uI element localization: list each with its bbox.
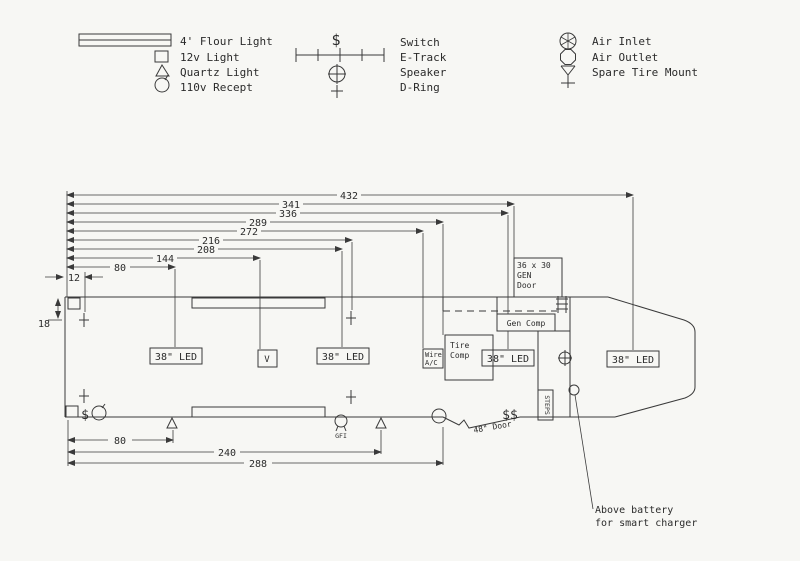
- d-ring-bottom-left: [79, 389, 89, 403]
- led-label-1: 38" LED: [150, 348, 202, 364]
- switch-bottom-left: $: [81, 408, 89, 423]
- wire-ac-box: Wire A/C: [423, 349, 443, 368]
- vent-label: V: [258, 350, 277, 367]
- dim-12: 12: [45, 272, 103, 312]
- svg-text:336: 336: [279, 209, 297, 220]
- svg-text:272: 272: [240, 227, 258, 238]
- bottom-dimensions: 80 240 288: [68, 420, 443, 470]
- legend-label-speaker: Speaker: [400, 66, 447, 79]
- quartz-light-2: [376, 418, 386, 428]
- air-inlet-icon: [560, 33, 576, 49]
- 12v-light-icon: [155, 51, 168, 62]
- tire-comp-box: Tire Comp: [445, 335, 493, 380]
- svg-text:38" LED: 38" LED: [612, 355, 654, 366]
- 110v-recept-icon: [155, 75, 169, 92]
- switch-icon: $: [331, 31, 340, 49]
- gfi-label: GFI: [335, 432, 347, 440]
- led-label-3: 38" LED: [482, 350, 534, 366]
- svg-text:Comp: Comp: [450, 351, 469, 360]
- svg-text:18: 18: [38, 319, 50, 330]
- svg-text:208: 208: [197, 245, 215, 256]
- svg-text:36 x 30: 36 x 30: [517, 261, 551, 270]
- legend-label-etrack: E-Track: [400, 51, 447, 64]
- dim-80-top: 80: [67, 263, 175, 347]
- gen-door-box: 36 x 30 GEN Door: [514, 258, 562, 297]
- led-label-4: 38" LED: [607, 351, 659, 367]
- svg-text:80: 80: [114, 436, 126, 447]
- d-ring-top-left: [79, 313, 89, 327]
- recept-bottom-left: [92, 404, 106, 420]
- plan-fixtures: $ GFI $$: [66, 296, 579, 440]
- svg-text:38" LED: 38" LED: [322, 352, 364, 363]
- spare-tire-mount-icon: [561, 66, 575, 88]
- dim-208: 208: [67, 245, 342, 347]
- svg-text:A/C: A/C: [425, 359, 438, 367]
- legend-label-spare-tire: Spare Tire Mount: [592, 66, 698, 79]
- svg-text:Above battery: Above battery: [595, 505, 673, 516]
- quartz-light-1: [167, 418, 177, 428]
- svg-text:Tire: Tire: [450, 341, 469, 350]
- dim-272: 272: [67, 227, 423, 348]
- legend-label-quartz-light: Quartz Light: [180, 66, 259, 79]
- d-ring-bottom-mid: [346, 390, 356, 404]
- 12v-light-top-left: [68, 298, 80, 309]
- dim-144: 144: [67, 254, 260, 349]
- svg-text:38" LED: 38" LED: [155, 352, 197, 363]
- legend: 4' Flour Light 12v Light Quartz Light 11…: [79, 31, 698, 98]
- dim-432: 432: [67, 191, 633, 350]
- battery-note: Above battery for smart charger: [575, 395, 697, 529]
- svg-text:for smart charger: for smart charger: [595, 518, 697, 529]
- floorplan-drawing: 4' Flour Light 12v Light Quartz Light 11…: [0, 0, 800, 561]
- fluor-light-top: [192, 298, 325, 308]
- plan-labels: 38" LED 38" LED 38" LED 38" LED V Wire A…: [150, 258, 697, 529]
- svg-text:144: 144: [156, 254, 174, 265]
- legend-label-switch: Switch: [400, 36, 440, 49]
- e-track-icon: [296, 48, 384, 62]
- quartz-light-icon: [156, 65, 169, 76]
- svg-text:GEN: GEN: [517, 271, 532, 280]
- svg-text:432: 432: [340, 191, 358, 202]
- fluor-light-icon: [79, 34, 171, 46]
- svg-text:Wire: Wire: [425, 351, 442, 359]
- svg-text:12: 12: [68, 273, 80, 284]
- door-size-label: 48" Door: [473, 419, 513, 435]
- dim-18-left: 18: [38, 299, 62, 330]
- dim-288: 288: [68, 427, 443, 470]
- svg-text:240: 240: [218, 448, 236, 459]
- air-outlet-bottom-wall: [432, 409, 446, 423]
- legend-label-air-outlet: Air Outlet: [592, 51, 658, 64]
- gen-comp-box: Gen Comp: [497, 314, 555, 331]
- air-outlet-icon: [561, 50, 576, 65]
- svg-text:STEPS: STEPS: [543, 395, 551, 415]
- etrack-vertical-gen-wall: [556, 296, 568, 313]
- gfi-recept: GFI: [335, 415, 347, 440]
- dim-336: 336: [67, 209, 508, 349]
- svg-text:288: 288: [249, 459, 267, 470]
- legend-label-12v-light: 12v Light: [180, 51, 240, 64]
- svg-text:Gen Comp: Gen Comp: [507, 319, 546, 328]
- led-label-2: 38" LED: [317, 348, 369, 364]
- steps-box: STEPS: [538, 390, 553, 420]
- 12v-light-bottom-left: [66, 406, 78, 417]
- speaker-icon: [328, 64, 346, 84]
- legend-label-110v-recept: 110v Recept: [180, 81, 253, 94]
- legend-label-dring: D-Ring: [400, 81, 440, 94]
- d-ring-top-mid: [346, 311, 356, 325]
- legend-label-air-inlet: Air Inlet: [592, 35, 652, 48]
- trailer-floorplan-sheet: 4' Flour Light 12v Light Quartz Light 11…: [0, 0, 800, 561]
- svg-text:Door: Door: [517, 281, 536, 290]
- svg-text:V: V: [264, 355, 270, 365]
- d-ring-icon: [331, 85, 343, 98]
- dim-80-bottom: 80: [68, 430, 173, 447]
- svg-text:80: 80: [114, 263, 126, 274]
- legend-label-fluor-light: 4' Flour Light: [180, 35, 273, 48]
- fluor-light-bottom: [192, 407, 325, 417]
